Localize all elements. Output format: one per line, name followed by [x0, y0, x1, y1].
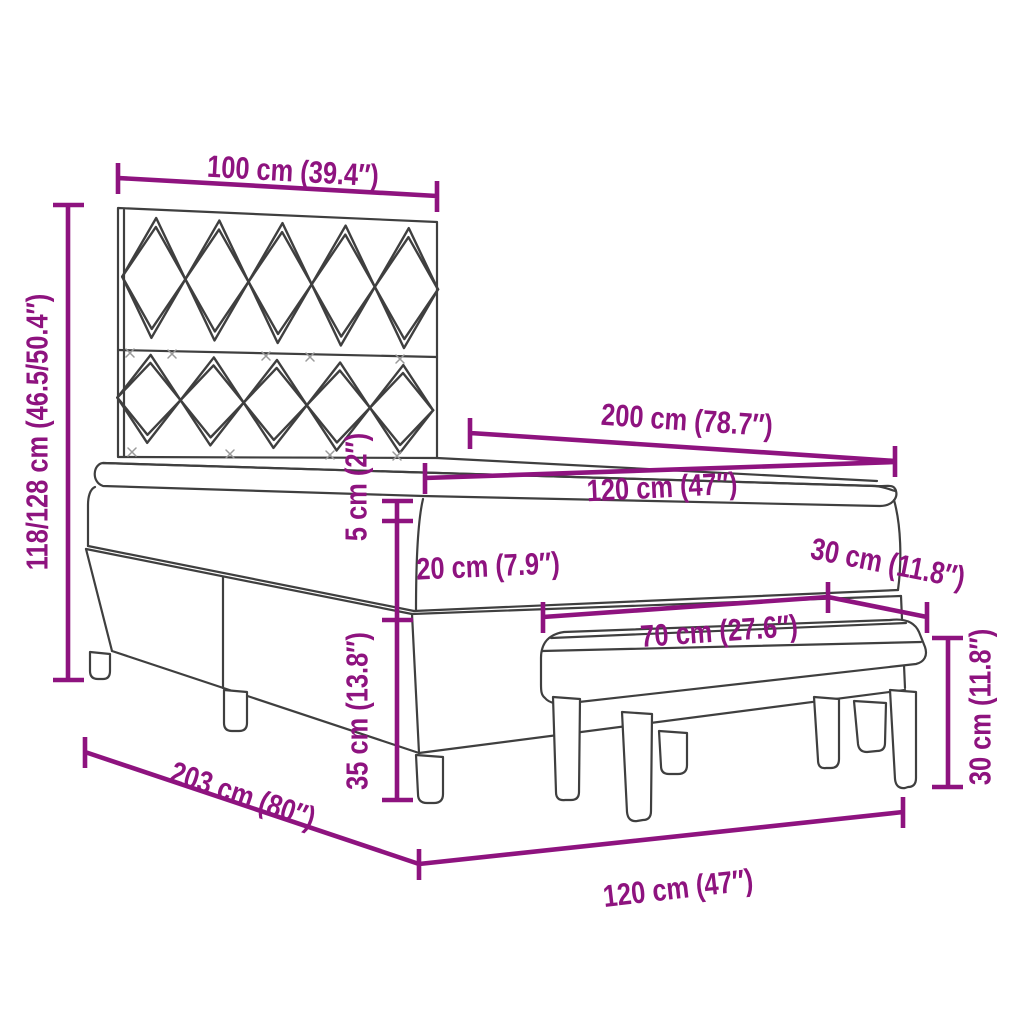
dim-label-headboard-width: 100 cm (39.4″) [206, 151, 379, 192]
dim-label-mattress-thickness: 20 cm (7.9″) [416, 547, 561, 584]
mattress-left-edge [88, 487, 95, 546]
mattress-topper [95, 463, 897, 506]
mattress-bottom-left-edge [88, 546, 414, 611]
base-left-edge [86, 549, 112, 651]
dim-label-topper-thickness: 5 cm (2″) [341, 433, 372, 541]
dim-label-base-height: 35 cm (13.8″) [342, 632, 373, 790]
bed-and-bench-line-drawing [0, 0, 1024, 1024]
dim-label-overall-height: 118/128 cm (46.5/50.4″) [22, 294, 53, 570]
base-top-left-edge [86, 549, 412, 614]
dim-label-bench-height: 30 cm (11.8″) [965, 629, 996, 785]
base-corner-edge [412, 614, 419, 753]
dim-label-bed-width: 120 cm (47″) [586, 468, 738, 507]
dimension-diagram: 100 cm (39.4″) 118/128 cm (46.5/50.4″) 2… [0, 0, 1024, 1024]
